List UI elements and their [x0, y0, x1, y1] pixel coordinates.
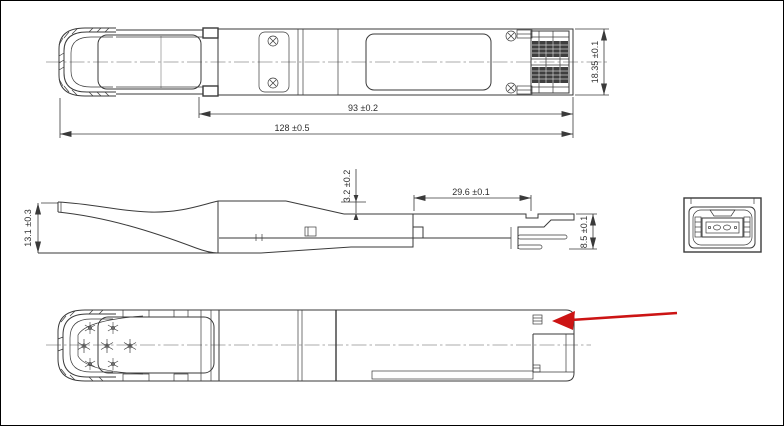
dim-rear-length: 29.6 ±0.1	[414, 187, 531, 211]
side-boss	[305, 227, 316, 236]
red-callout-arrow	[552, 311, 677, 330]
dim-top-recess: 3.2 ±0.2	[341, 169, 366, 220]
side-view: 13.1 ±0.3 3.2 ±0.2 29.6 ±0.1 8.5 ±0.1	[23, 169, 597, 253]
end-view	[684, 198, 761, 252]
slider-bottom-view	[98, 310, 219, 381]
dim-rear-height: 8.5 ±0.1	[569, 214, 597, 249]
dim-overall-length-label: 128 ±0.5	[275, 123, 310, 133]
red-arrow-head	[552, 311, 575, 330]
bottom-view	[46, 310, 677, 381]
emi-springs	[695, 217, 750, 237]
dim-width-label: 18.35 ±0.1	[590, 41, 600, 83]
bottom-recess-strip	[372, 371, 533, 379]
cavity-key-tab	[710, 210, 735, 216]
pin-marker-2	[533, 365, 540, 372]
dim-height: 13.1 ±0.3	[23, 203, 58, 253]
dim-body-length: 93 ±0.2	[199, 97, 573, 138]
drawing-frame: 18.35 ±0.1 93 ±0.2 128 ±0.5	[0, 0, 784, 426]
grip-texture-stars	[78, 322, 136, 370]
dim-body-length-label: 93 ±0.2	[348, 103, 378, 113]
screw-icon	[506, 83, 516, 93]
dim-height-label: 13.1 ±0.3	[23, 209, 33, 246]
housing-bottom-view	[219, 310, 574, 381]
receptacle	[702, 218, 743, 237]
top-view: 18.35 ±0.1 93 ±0.2 128 ±0.5	[46, 28, 609, 138]
pull-tab-side-view	[58, 201, 218, 253]
screw-icon	[268, 78, 278, 88]
contact-pin	[518, 235, 567, 239]
transceiver-mechanical-drawing: 18.35 ±0.1 93 ±0.2 128 ±0.5	[1, 1, 784, 426]
dim-top-recess-label: 3.2 ±0.2	[342, 170, 352, 202]
contact-pin	[518, 245, 542, 249]
pin1-marker	[533, 315, 542, 324]
screw-icon	[268, 36, 278, 46]
dim-width: 18.35 ±0.1	[575, 29, 609, 95]
dim-overall-length: 128 ±0.5	[60, 98, 573, 138]
screw-icon	[506, 31, 516, 41]
dim-rear-height-label: 8.5 ±0.1	[579, 216, 589, 248]
dim-rear-length-label: 29.6 ±0.1	[452, 187, 489, 197]
